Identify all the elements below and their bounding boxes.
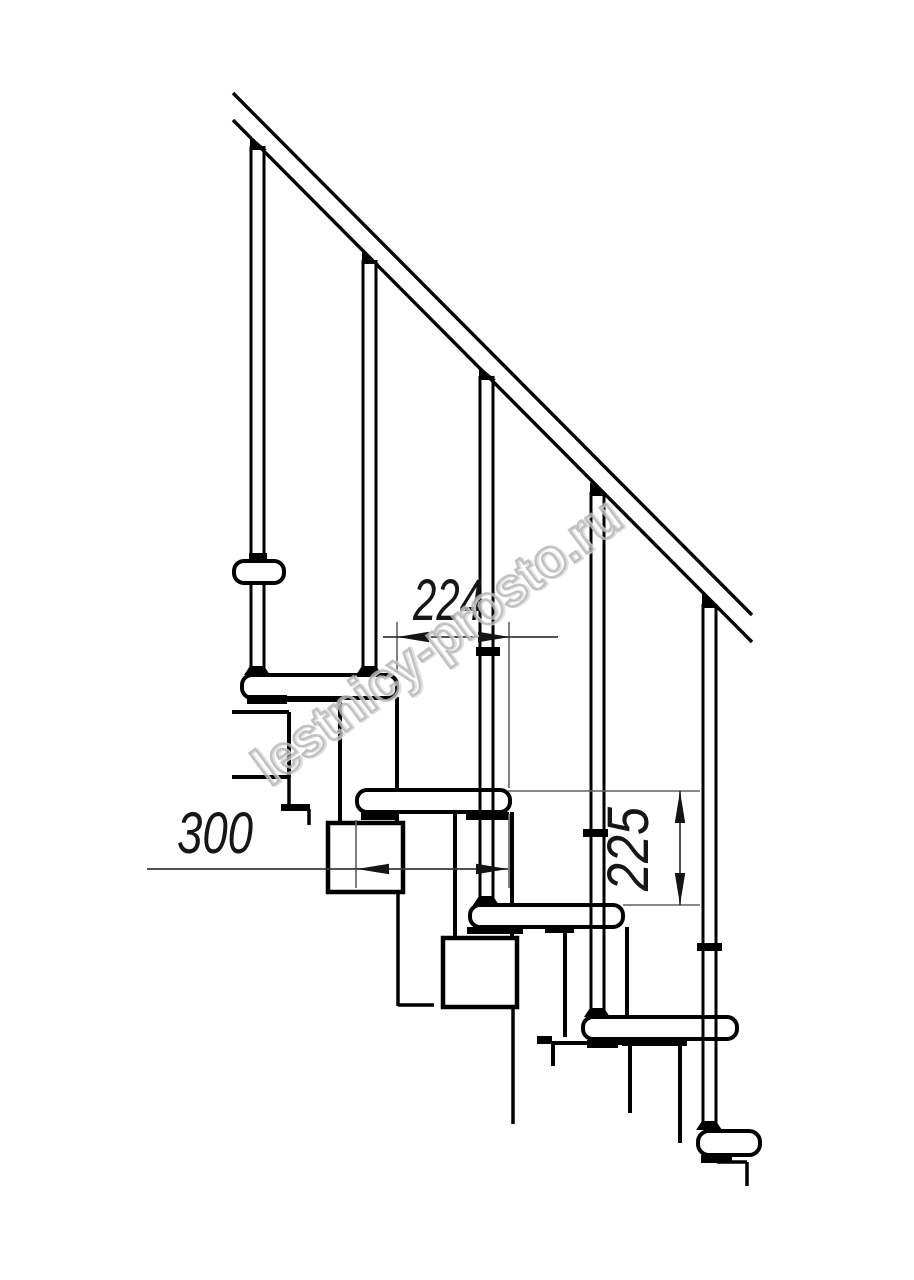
clamp-block <box>361 812 395 820</box>
clamp-block <box>466 812 509 820</box>
tread <box>357 790 510 812</box>
dimension-arrow <box>675 791 685 823</box>
dimension-label: 225 <box>596 806 661 892</box>
baluster-foot <box>584 1008 610 1017</box>
baluster-foot <box>473 896 499 905</box>
clamp-block <box>467 927 523 934</box>
baluster-foot <box>696 1121 722 1130</box>
tread <box>583 1017 737 1039</box>
clamp-block <box>697 943 722 951</box>
watermark: lestnicy-prosto.rulestnicy-prosto.ru <box>241 484 635 797</box>
tread <box>470 905 623 927</box>
clamp-block <box>537 1036 552 1044</box>
clamp-block <box>281 804 310 811</box>
baluster <box>591 492 604 1017</box>
baluster <box>363 260 376 675</box>
tread <box>698 1131 760 1155</box>
watermark-text: lestnicy-prosto.ru <box>241 484 633 797</box>
clamp-block <box>587 1040 618 1048</box>
upper-tread-collar <box>234 561 284 583</box>
staircase-technical-drawing: 224300225lestnicy-prosto.rulestnicy-pros… <box>0 0 914 1280</box>
clamp-block <box>247 695 287 704</box>
clamp-block <box>701 1155 732 1163</box>
baluster <box>251 146 264 675</box>
upper-tread-edge <box>234 561 284 583</box>
baluster-foot <box>244 666 270 675</box>
clamp-block <box>622 1040 687 1046</box>
dimension-arrow <box>675 873 685 905</box>
clamp-block <box>545 927 574 933</box>
spine-module-box <box>443 938 517 1007</box>
spine-module-box <box>328 823 403 892</box>
baluster <box>703 604 716 1130</box>
dimension-label: 300 <box>177 801 253 866</box>
screenshot-root: 224300225lestnicy-prosto.rulestnicy-pros… <box>0 0 914 1280</box>
